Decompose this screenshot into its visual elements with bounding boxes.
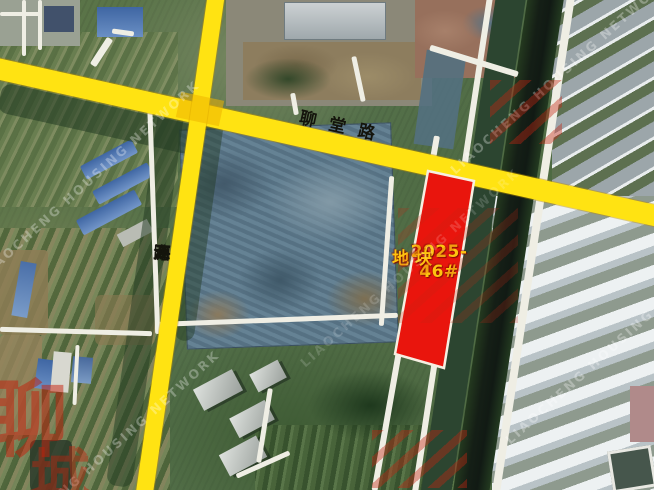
satellite-map: 聊堂路 海 源 路 2025-46# 地块 LIAOCHENG HOUSING …: [0, 0, 654, 490]
watermark-logo-bars: [490, 80, 562, 144]
watermark-logo-char: 城: [30, 448, 90, 490]
watermark-logo-bars: [372, 430, 467, 488]
watermark-logo-bars: [398, 208, 518, 323]
